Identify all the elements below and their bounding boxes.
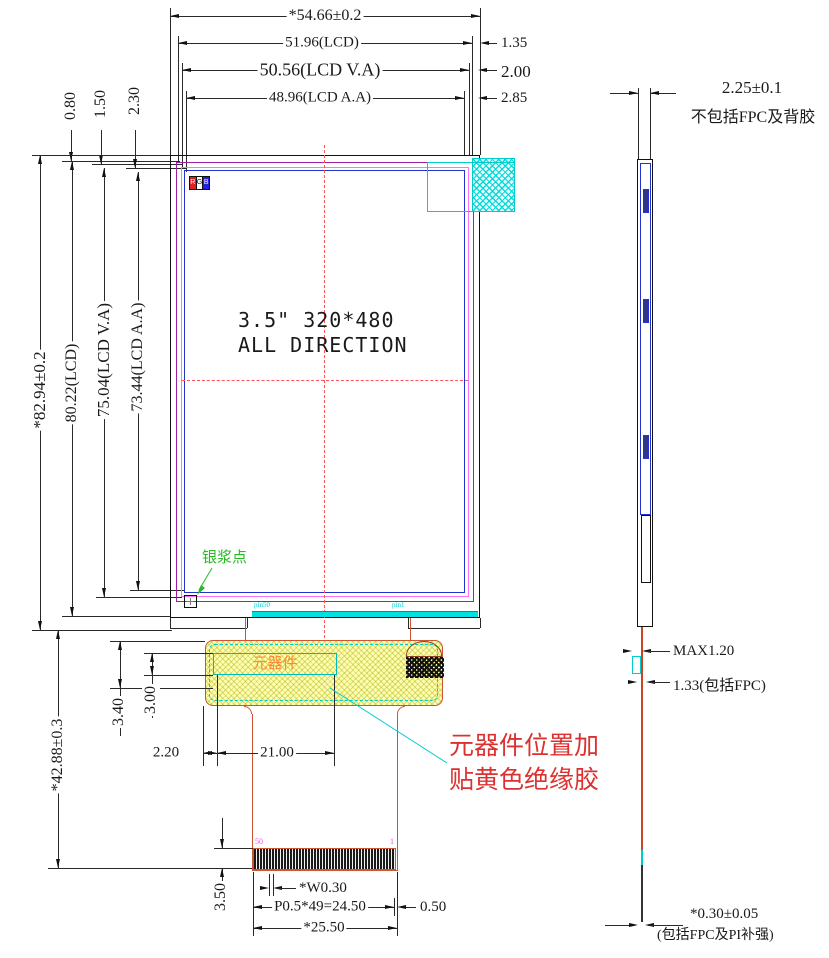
fpc-component-hatch [406, 657, 444, 678]
dim-contact-height: 3.50 [212, 881, 230, 913]
arrowhead [99, 155, 103, 164]
arrowhead [629, 923, 638, 927]
component-area-box: 元器件 [213, 653, 337, 675]
dimension-line [638, 88, 639, 160]
dim-max-thickness: MAX1.20 [673, 643, 734, 660]
arrowhead [455, 96, 464, 100]
dimension-line [269, 874, 270, 896]
centerline-vertical [324, 145, 325, 668]
pin-label-right: pin1 [392, 601, 404, 609]
dim-fpc-bottom: *0.30±0.05 [690, 906, 758, 923]
rc-shape [190, 598, 191, 605]
dimension-line [110, 688, 213, 689]
arrowhead [70, 161, 74, 170]
dimension-line [32, 155, 172, 156]
arrowhead [150, 666, 154, 675]
arrowhead [460, 68, 469, 72]
pin-label-left: pin50 [254, 601, 270, 609]
dimension-line [650, 88, 651, 160]
dim-aa-height: 73.44(LCD A.A) [129, 301, 147, 414]
fpc-gold-fingers [253, 848, 396, 870]
arrowhead [220, 839, 224, 848]
side-profile-lcd [640, 163, 651, 515]
arrowhead [388, 926, 397, 930]
side-fpc-line [641, 627, 643, 850]
pin-number-end: 1 [390, 837, 394, 846]
dimension-line [480, 618, 481, 628]
arrowhead [471, 14, 480, 18]
dimension-line [178, 36, 179, 162]
dimension-line [203, 706, 204, 766]
dimension-line [182, 63, 183, 168]
panel-direction-text: ALL DIRECTION [238, 333, 408, 357]
side-fpc-stiffener [641, 865, 643, 922]
dim-lcd-height: 80.22(LCD) [63, 342, 81, 425]
arrowhead [102, 168, 106, 177]
dimension-line [410, 618, 411, 641]
arrowhead [325, 751, 334, 755]
dim-va-width: 50.56(LCD V.A) [258, 60, 383, 81]
bonding-bar [252, 611, 478, 617]
dimension-line [247, 618, 248, 628]
side-tape-tab-2 [643, 299, 649, 323]
rc-shape [397, 706, 405, 714]
arrowhead [38, 155, 42, 164]
rgb-g: G [197, 177, 204, 189]
dim-thickness: 2.25±0.1 [720, 78, 784, 98]
dim-top-offset-3: 2.30 [126, 85, 144, 117]
rc-shape [244, 706, 252, 714]
dimension-line [464, 91, 465, 155]
rgb-pixel-marker: R G B [189, 176, 210, 190]
dimension-line [394, 898, 395, 916]
arrowhead [56, 630, 60, 639]
arrowhead [133, 159, 137, 168]
dimension-line [144, 653, 213, 654]
dim-tail-width: *25.50 [301, 920, 346, 937]
arrowhead [170, 14, 179, 18]
corner-tape-outline [427, 162, 515, 212]
arrowhead [253, 905, 262, 909]
dim-aa-width: 48.96(LCD A.A) [267, 90, 373, 107]
fpc-note-line1: 元器件位置加 [449, 726, 599, 762]
arrowhead [253, 926, 262, 930]
dim-top-offset-1: 0.80 [62, 90, 80, 122]
side-fpc-cyan-seg [641, 850, 643, 865]
dimension-line [487, 70, 497, 71]
arrowhead [217, 751, 226, 755]
dimension-line [645, 651, 670, 652]
dimension-line [649, 682, 670, 683]
arrowhead [136, 581, 140, 590]
arrowhead [186, 96, 195, 100]
dimension-line [252, 714, 253, 870]
arrowhead [650, 91, 659, 95]
dimension-line [469, 63, 470, 155]
side-tape-tab-3 [643, 435, 649, 459]
dim-pitch: P0.5*49=24.50 [272, 899, 368, 916]
dimension-line [62, 161, 180, 162]
arrowhead [220, 868, 224, 877]
dimension-line [32, 630, 172, 631]
dimension-line [489, 43, 497, 44]
arrowhead [136, 172, 140, 181]
arrowhead [118, 679, 122, 688]
arrowhead [70, 607, 74, 616]
arrowhead [56, 859, 60, 868]
dimension-line [408, 628, 480, 629]
dim-top-offset-2: 1.50 [92, 88, 110, 120]
arrowhead [463, 41, 472, 45]
arrowhead [69, 152, 73, 161]
arrowhead [118, 641, 122, 650]
arrowhead [478, 96, 487, 100]
silver-dot-mark [184, 595, 197, 608]
arrowhead [102, 588, 106, 597]
dimension-line [334, 675, 335, 766]
dimension-line [278, 888, 296, 889]
arrowhead [385, 905, 394, 909]
dimension-line [62, 616, 170, 617]
component-area-label: 元器件 [252, 656, 297, 672]
dimension-line [214, 848, 253, 849]
rgb-b: B [203, 177, 209, 189]
dim-overall-width: *54.66±0.2 [287, 7, 364, 25]
side-backlight [641, 515, 651, 583]
side-tape-tab-1 [643, 189, 649, 213]
rgb-r: R [190, 177, 197, 189]
dim-edge-offset-2: 2.00 [501, 62, 531, 82]
dim-contact-width: *W0.30 [299, 880, 347, 897]
dim-edge-offset-3: 2.85 [501, 90, 527, 107]
dim-margin: 0.50 [420, 899, 446, 916]
lcd-module-drawing: *54.66±0.2 51.96(LCD) 50.56(LCD V.A) 48.… [0, 0, 829, 958]
side-connector [632, 656, 641, 674]
dimension-line [170, 8, 171, 155]
arrowhead [480, 41, 489, 45]
arrowhead [623, 649, 632, 653]
dim-gap1: 3.00 [142, 684, 160, 716]
arrowhead [260, 886, 269, 890]
arrowhead [478, 68, 487, 72]
dim-component-width: 21.00 [258, 745, 296, 762]
arrowhead [182, 68, 191, 72]
dim-offset: 2.20 [151, 745, 181, 762]
arrowhead [178, 41, 187, 45]
arrowhead [628, 680, 637, 684]
panel-size-text: 3.5" 320*480 [238, 308, 395, 332]
dimension-line [170, 618, 171, 628]
dimension-line [144, 675, 213, 676]
dimension-line [472, 36, 473, 155]
dimension-line [170, 628, 247, 629]
dim-lcd-width: 51.96(LCD) [283, 35, 361, 52]
arrowhead [397, 905, 406, 909]
dim-overall-height: *82.94±0.2 [30, 349, 50, 430]
arrowhead [150, 653, 154, 662]
dim-thickness-note: 不包括FPC及背胶 [689, 103, 817, 127]
arrowhead [38, 621, 42, 630]
dim-gap2: 3.40 [110, 696, 128, 728]
dimension-line [487, 98, 497, 99]
dimension-line [245, 618, 246, 641]
arrowhead [629, 91, 638, 95]
dimension-line [397, 714, 398, 870]
dimension-line [605, 925, 629, 926]
fpc-note-line2: 贴黄色绝缘胶 [449, 760, 599, 796]
arrowhead [208, 751, 217, 755]
dim-fpc-length: *42.88±0.3 [49, 717, 67, 794]
centerline-horizontal [182, 380, 468, 381]
dimension-line [408, 618, 409, 628]
dimension-line [406, 907, 416, 908]
dim-va-height: 75.04(LCD V.A) [94, 301, 114, 419]
dimension-line [252, 870, 398, 871]
pin-number-start: 50 [255, 837, 263, 846]
dimension-line [480, 8, 481, 155]
silver-dot-label: 银浆点 [202, 546, 247, 567]
dim-fpc-thickness: 1.33(包括FPC) [673, 674, 766, 695]
dimension-line [110, 641, 205, 642]
dim-edge-offset-1: 1.35 [501, 35, 527, 52]
dim-fpc-bottom-note: (包括FPC及PI补强) [657, 924, 774, 944]
